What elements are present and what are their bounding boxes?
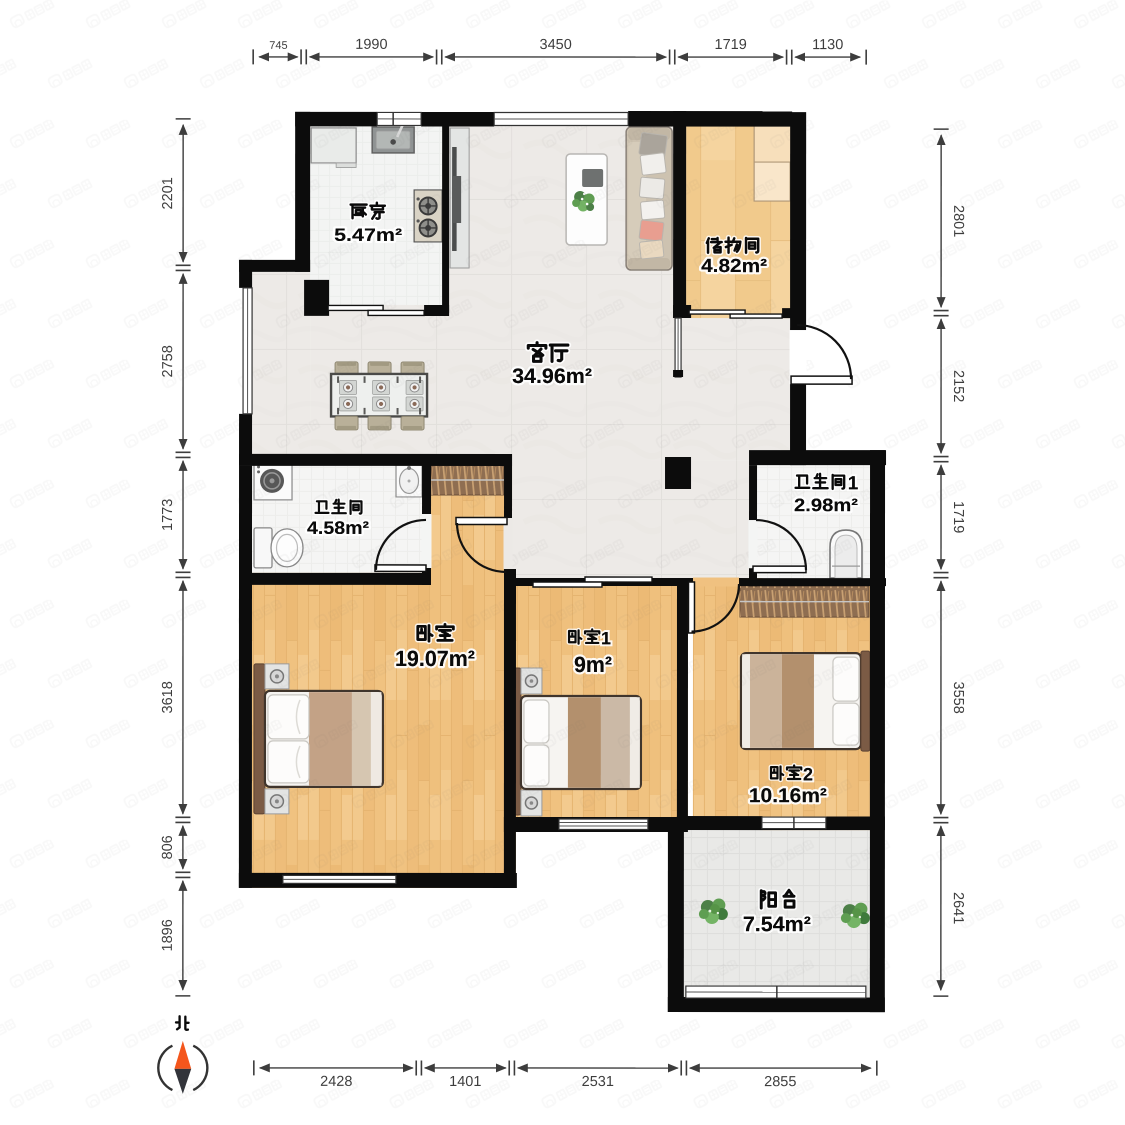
svg-text:1719: 1719 — [950, 501, 966, 533]
svg-text:1773: 1773 — [160, 499, 176, 531]
svg-text:1: 1 — [848, 473, 859, 494]
svg-text:2641: 2641 — [950, 892, 966, 924]
svg-text:1896: 1896 — [160, 919, 176, 951]
svg-text:1990: 1990 — [355, 37, 387, 53]
svg-text:2428: 2428 — [320, 1074, 352, 1090]
svg-text:2855: 2855 — [764, 1074, 796, 1090]
svg-text:2.98m²: 2.98m² — [794, 495, 858, 515]
svg-text:3618: 3618 — [160, 681, 176, 713]
svg-text:10.16m²: 10.16m² — [749, 785, 827, 807]
svg-text:806: 806 — [160, 835, 176, 859]
svg-text:745: 745 — [269, 40, 287, 52]
svg-text:2201: 2201 — [160, 177, 176, 209]
svg-text:2801: 2801 — [950, 205, 966, 237]
svg-text:4.58m²: 4.58m² — [307, 518, 369, 538]
svg-text:2531: 2531 — [582, 1074, 614, 1090]
svg-text:3558: 3558 — [950, 682, 966, 714]
svg-text:9m²: 9m² — [574, 652, 612, 677]
svg-text:1401: 1401 — [449, 1074, 481, 1090]
svg-text:5.47m²: 5.47m² — [334, 225, 402, 245]
svg-text:3450: 3450 — [540, 37, 572, 53]
svg-text:19.07m²: 19.07m² — [395, 646, 475, 671]
svg-text:1: 1 — [601, 628, 611, 648]
svg-text:7.54m²: 7.54m² — [743, 913, 811, 936]
svg-text:2: 2 — [803, 764, 813, 784]
svg-text:4.82m²: 4.82m² — [701, 256, 767, 277]
svg-text:2758: 2758 — [160, 345, 176, 377]
svg-text:1130: 1130 — [812, 37, 843, 53]
svg-text:1719: 1719 — [715, 37, 747, 53]
svg-text:2152: 2152 — [950, 370, 966, 402]
svg-text:34.96m²: 34.96m² — [512, 365, 592, 388]
